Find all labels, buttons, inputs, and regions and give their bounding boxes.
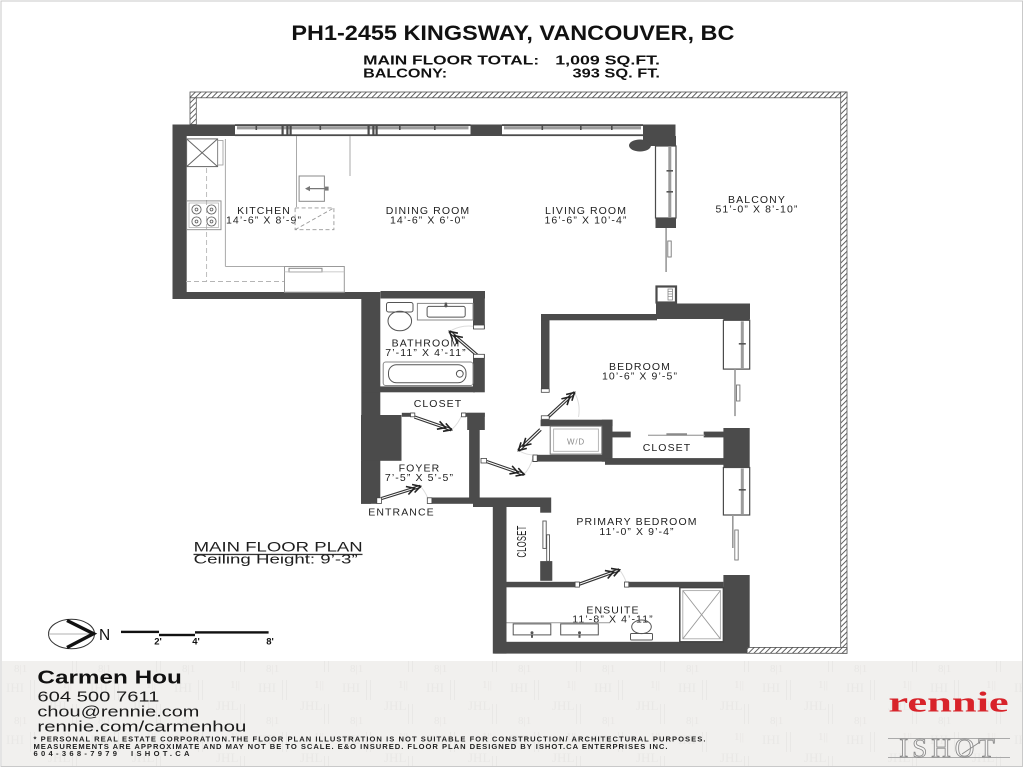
svg-text:ISHOT: ISHOT (899, 733, 999, 763)
svg-text:11’-0” X 9’-4”: 11’-0” X 9’-4” (599, 526, 674, 538)
svg-text:N: N (99, 627, 110, 644)
svg-text:CLOSET: CLOSET (414, 398, 463, 410)
svg-text:W/D: W/D (567, 438, 585, 447)
svg-text:CLOSET: CLOSET (643, 442, 692, 454)
svg-text:7’-11” X 4’-11”: 7’-11” X 4’-11” (385, 347, 466, 359)
svg-text:CLOSET: CLOSET (515, 525, 530, 557)
svg-text:MEASUREMENTS ARE APPROXIMATE A: MEASUREMENTS ARE APPROXIMATE AND MAY NOT… (34, 742, 668, 751)
svg-text:393 SQ. FT.: 393 SQ. FT. (573, 65, 661, 80)
svg-text:PH1-2455 KINGSWAY, VANCOUVER,: PH1-2455 KINGSWAY, VANCOUVER, BC (291, 22, 734, 45)
svg-text:Carmen Hou: Carmen Hou (37, 667, 182, 688)
svg-text:51’-0” X 8’-10”: 51’-0” X 8’-10” (715, 204, 798, 216)
svg-text:rennie: rennie (888, 688, 1008, 719)
svg-text:rennie.com/carmenhou: rennie.com/carmenhou (37, 719, 246, 736)
svg-text:604-368-7979 ISHOT.CA: 604-368-7979 ISHOT.CA (34, 749, 191, 758)
svg-text:Ceiling Height: 9’-3”: Ceiling Height: 9’-3” (194, 552, 358, 567)
svg-text:4': 4' (192, 637, 200, 648)
svg-text:BALCONY:: BALCONY: (363, 65, 447, 80)
svg-text:10’-6” X 9’-5”: 10’-6” X 9’-5” (602, 371, 678, 383)
svg-text:16’-6” X 10’-4”: 16’-6” X 10’-4” (544, 215, 627, 227)
svg-text:14’-6” X 8’-9”: 14’-6” X 8’-9” (226, 215, 302, 227)
svg-text:2': 2' (154, 637, 162, 648)
svg-text:8': 8' (266, 637, 274, 648)
svg-text:ENTRANCE: ENTRANCE (368, 507, 435, 519)
svg-text:7’-5” X 5’-5”: 7’-5” X 5’-5” (385, 472, 454, 484)
svg-text:14’-6” X 6’-0”: 14’-6” X 6’-0” (390, 215, 466, 227)
